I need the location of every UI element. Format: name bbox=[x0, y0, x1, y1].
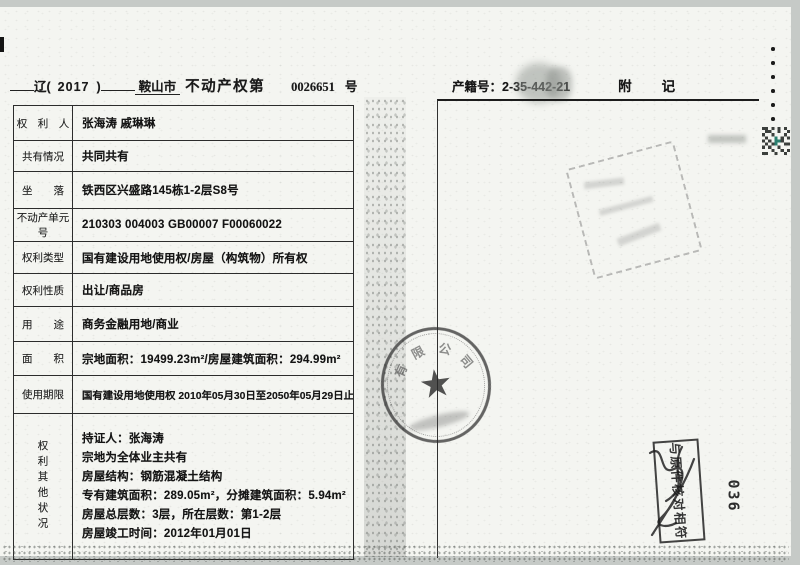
table-row: 面 积 宗地面积：19499.23m²/房屋建筑面积：294.99m² bbox=[14, 342, 353, 376]
row-value: 铁西区兴盛路145栋1-2层S8号 bbox=[73, 172, 353, 208]
round-company-seal: 有 限 公 司 ★ bbox=[373, 320, 498, 450]
page-code: 036 bbox=[725, 479, 743, 512]
table-row: 用 途 商务金融用地/商业 bbox=[14, 307, 353, 342]
table-row: 使用期限 国有建设用地使用权 2010年05月30日至2050年05月29日止 bbox=[14, 376, 353, 414]
handwritten-signature bbox=[636, 435, 722, 547]
row-label: 面 积 bbox=[14, 342, 73, 375]
row-label: 用 途 bbox=[14, 307, 73, 341]
other-rights-details: 持证人：张海涛 宗地为全体业主共有 房屋结构：钢筋混凝土结构 专有建筑面积：28… bbox=[73, 414, 353, 559]
stamp-smudge bbox=[599, 196, 654, 216]
row-label: 使用期限 bbox=[14, 376, 73, 413]
registry-number-line: 产籍号：2-35-442-21附记 bbox=[452, 75, 675, 95]
annex-title-char: 记 bbox=[662, 79, 676, 94]
scan-edge-mark bbox=[0, 37, 4, 52]
registry-number: 2-35-442-21 bbox=[502, 80, 570, 94]
detail-line: 持证人：张海涛 bbox=[82, 431, 164, 447]
detail-line: 房屋总层数：3层，所在层数：第1-2层 bbox=[82, 507, 281, 523]
annex-title-char: 附 bbox=[618, 79, 632, 94]
binding-dots bbox=[771, 47, 775, 131]
underline-segment bbox=[10, 77, 34, 91]
table-row: 共有情况 共同共有 bbox=[14, 141, 353, 172]
page-fold-shadow bbox=[364, 97, 406, 557]
detail-line: 宗地为全体业主共有 bbox=[82, 450, 187, 466]
row-value: 商务金融用地/商业 bbox=[73, 307, 353, 341]
star-icon: ★ bbox=[416, 359, 456, 408]
table-row-other-rights: 权利其他状况 持证人：张海涛 宗地为全体业主共有 房屋结构：钢筋混凝土结构 专有… bbox=[14, 414, 353, 559]
row-label: 权利类型 bbox=[14, 242, 73, 273]
row-label-vertical: 权利其他状况 bbox=[14, 414, 73, 559]
province-prefix: 辽( bbox=[34, 80, 51, 94]
row-value: 共同共有 bbox=[73, 141, 353, 171]
row-label: 共有情况 bbox=[14, 141, 73, 171]
stamp-smudge bbox=[617, 223, 662, 247]
table-row: 权利类型 国有建设用地使用权/房屋（构筑物）所有权 bbox=[14, 242, 353, 274]
underline-segment bbox=[101, 77, 135, 91]
detail-line: 房屋竣工时间：2012年01月01日 bbox=[82, 526, 252, 542]
property-table: 权 利 人 张海涛 戚琳琳 共有情况 共同共有 坐 落 铁西区兴盛路145栋1-… bbox=[13, 105, 354, 560]
row-label: 坐 落 bbox=[14, 172, 73, 208]
document-type: 不动产权第 bbox=[185, 79, 265, 95]
city-name: 鞍山市 bbox=[135, 80, 181, 95]
table-row: 权 利 人 张海涛 戚琳琳 bbox=[14, 106, 353, 141]
row-value: 国有建设用地使用权/房屋（构筑物）所有权 bbox=[73, 242, 353, 273]
stamp-smudge bbox=[584, 177, 625, 189]
certificate-serial: 0026651 bbox=[291, 80, 335, 94]
issue-year: 2017 bbox=[58, 80, 90, 94]
row-label: 权 利 人 bbox=[14, 106, 73, 140]
row-value: 张海涛 戚琳琳 bbox=[73, 106, 353, 140]
row-value: 出让/商品房 bbox=[73, 274, 353, 306]
other-rights-label: 权利其他状况 bbox=[36, 440, 51, 533]
row-value: 宗地面积：19499.23m²/房屋建筑面积：294.99m² bbox=[73, 342, 353, 375]
detail-line: 房屋结构：钢筋混凝土结构 bbox=[82, 469, 222, 485]
certificate-page: 辽(2017)鞍山市不动产权第0026651号 产籍号：2-35-442-21附… bbox=[0, 7, 791, 556]
number-suffix: 号 bbox=[345, 80, 358, 94]
qr-code-icon bbox=[762, 127, 790, 155]
row-value: 210303 004003 GB00007 F00060022 bbox=[73, 209, 353, 241]
certificate-number-line: 辽(2017)鞍山市不动产权第0026651号 bbox=[10, 75, 357, 96]
table-row: 权利性质 出让/商品房 bbox=[14, 274, 353, 307]
detail-line: 专有建筑面积：289.05m²，分摊建筑面积：5.94m² bbox=[82, 488, 346, 504]
table-row: 坐 落 铁西区兴盛路145栋1-2层S8号 bbox=[14, 172, 353, 209]
registry-label: 产籍号： bbox=[452, 80, 502, 94]
row-label: 权利性质 bbox=[14, 274, 73, 306]
table-row: 不动产单元号 210303 004003 GB00007 F00060022 bbox=[14, 209, 353, 242]
row-value: 国有建设用地使用权 2010年05月30日至2050年05月29日止 bbox=[73, 376, 353, 413]
row-label: 不动产单元号 bbox=[14, 209, 73, 241]
